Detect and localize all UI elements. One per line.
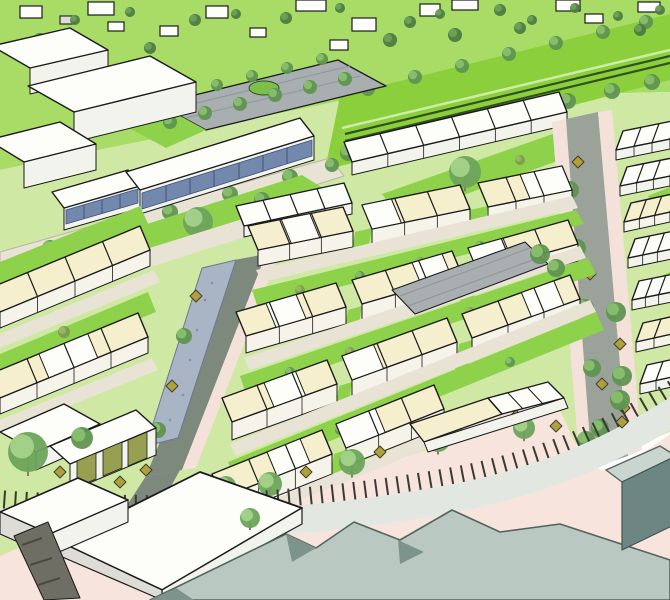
tree-icon xyxy=(409,71,417,79)
tree-icon xyxy=(212,80,219,87)
tree-icon xyxy=(531,245,543,257)
tree-icon xyxy=(269,89,277,97)
tree-icon xyxy=(281,13,288,20)
tree-icon xyxy=(71,16,77,22)
tree-icon xyxy=(503,48,511,56)
speckle xyxy=(196,329,199,332)
speckle xyxy=(189,359,192,362)
bg-building xyxy=(352,18,376,31)
tree-icon xyxy=(613,367,625,379)
bg-building xyxy=(250,28,266,37)
bg-building xyxy=(296,0,326,11)
tree-icon xyxy=(611,391,623,403)
tree-icon xyxy=(515,23,522,30)
tree-icon xyxy=(614,12,620,18)
tree-icon xyxy=(550,37,558,45)
tree-icon xyxy=(296,286,302,292)
tree-icon xyxy=(72,428,85,441)
tree-icon xyxy=(241,509,253,521)
tree-icon xyxy=(185,209,203,227)
tree-icon xyxy=(584,360,595,371)
tree-icon xyxy=(326,159,334,167)
tree-icon xyxy=(283,170,293,180)
bg-building xyxy=(585,14,603,23)
tree-icon xyxy=(635,25,642,32)
tree-icon xyxy=(145,43,152,50)
speckle xyxy=(204,299,207,302)
tree-icon xyxy=(190,15,197,22)
tree-icon xyxy=(10,434,34,458)
tree-icon xyxy=(223,187,233,197)
tree-icon xyxy=(645,75,655,85)
tree-icon xyxy=(126,8,132,14)
tree-icon xyxy=(495,5,502,12)
tree-icon xyxy=(339,73,347,81)
tree-icon xyxy=(59,327,66,334)
tree-icon xyxy=(571,4,577,10)
tree-icon xyxy=(340,451,356,467)
tree-icon xyxy=(506,358,512,364)
masterplan-scene xyxy=(0,0,670,600)
bg-building xyxy=(206,6,228,18)
tree-icon xyxy=(456,60,464,68)
bg-building xyxy=(330,40,348,50)
speckle xyxy=(182,394,185,397)
bg-building xyxy=(452,0,478,10)
tree-icon xyxy=(548,260,559,271)
tree-icon xyxy=(607,303,619,315)
tree-icon xyxy=(317,54,324,61)
masterplan-rendering xyxy=(0,0,670,600)
tree-icon xyxy=(234,98,242,106)
bg-building xyxy=(160,26,178,36)
tree-icon xyxy=(282,63,289,70)
tree-icon xyxy=(605,84,615,94)
tree-icon xyxy=(247,71,254,78)
speckle xyxy=(211,282,214,285)
tree-icon xyxy=(451,158,470,177)
tree-icon xyxy=(356,272,362,278)
tree-icon xyxy=(259,473,273,487)
speckle xyxy=(169,419,172,422)
bg-building xyxy=(108,22,124,31)
bg-building xyxy=(88,2,114,15)
tree-icon xyxy=(232,10,238,16)
tree-icon xyxy=(656,6,662,12)
tree-icon xyxy=(436,10,442,16)
tree-icon xyxy=(528,16,534,22)
tree-icon xyxy=(640,16,648,24)
tree-icon xyxy=(336,4,342,10)
tree-icon xyxy=(384,34,392,42)
tree-icon xyxy=(405,17,412,24)
tree-icon xyxy=(199,107,207,115)
tree-icon xyxy=(597,26,605,34)
tree-icon xyxy=(304,81,312,89)
tree-icon xyxy=(177,329,187,339)
bg-building xyxy=(20,6,42,18)
tree-icon xyxy=(449,29,457,37)
tree-icon xyxy=(516,156,522,162)
